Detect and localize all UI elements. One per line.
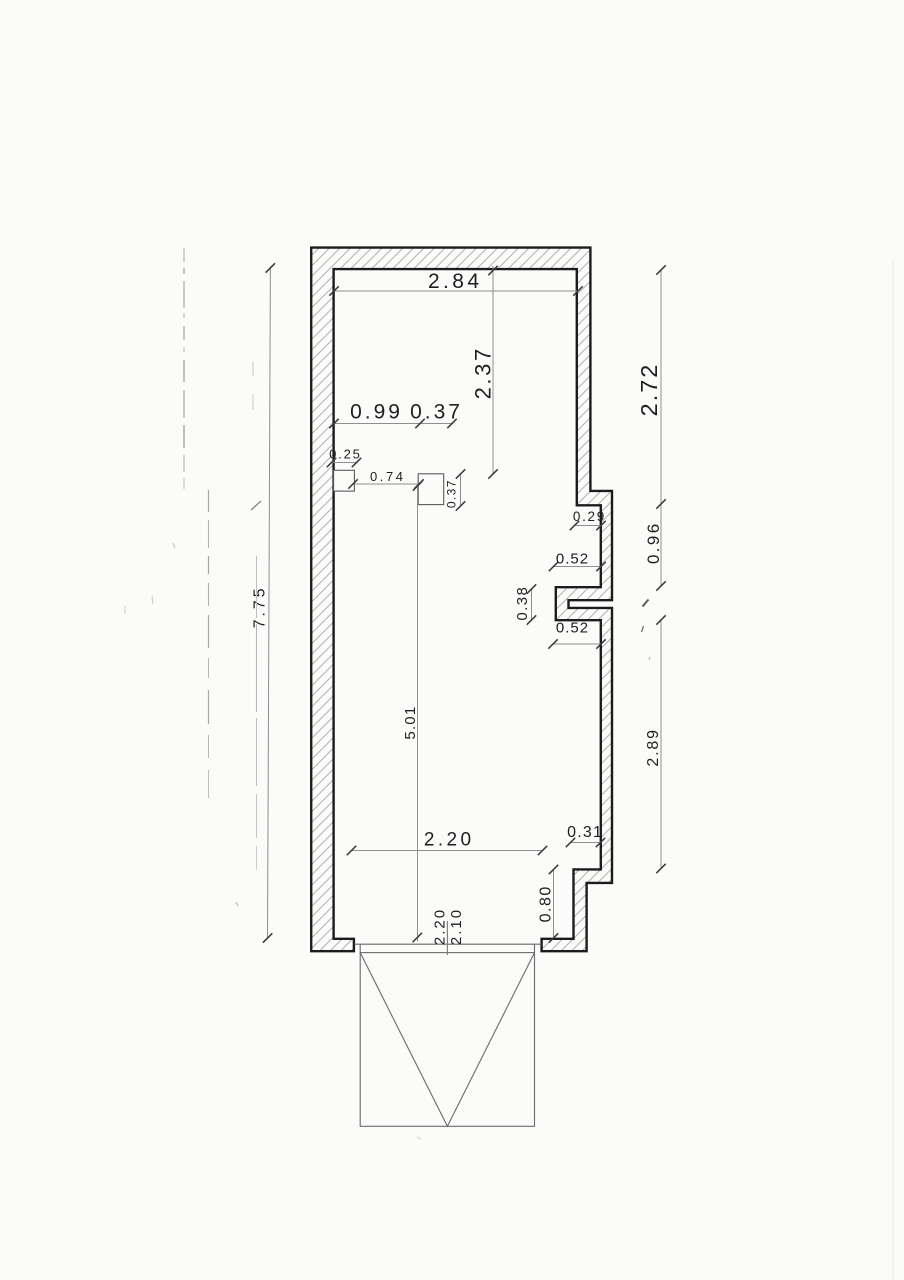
svg-text:0.38: 0.38 [514,586,531,621]
svg-text:0.74: 0.74 [370,469,406,484]
svg-text:2.20: 2.20 [432,908,449,945]
svg-text:0.37: 0.37 [445,479,459,508]
svg-text:2.84: 2.84 [428,270,482,293]
svg-text:2.89: 2.89 [645,728,662,766]
svg-text:0.31: 0.31 [567,824,603,841]
svg-text:0.96: 0.96 [644,521,663,564]
svg-text:0.37: 0.37 [410,401,463,424]
svg-text:0.99: 0.99 [350,401,403,424]
svg-text:0.52: 0.52 [556,550,589,567]
svg-text:0.29: 0.29 [573,509,606,524]
svg-text:0.80: 0.80 [538,885,555,922]
svg-text:2.10: 2.10 [448,908,465,945]
svg-text:0.25: 0.25 [329,446,362,461]
svg-text:5.01: 5.01 [402,706,419,740]
svg-text:2.37: 2.37 [471,346,496,399]
svg-text:7.75: 7.75 [252,586,269,629]
svg-text:0.52: 0.52 [556,620,589,637]
svg-text:2.72: 2.72 [636,363,662,417]
svg-text:2.20: 2.20 [424,830,475,851]
